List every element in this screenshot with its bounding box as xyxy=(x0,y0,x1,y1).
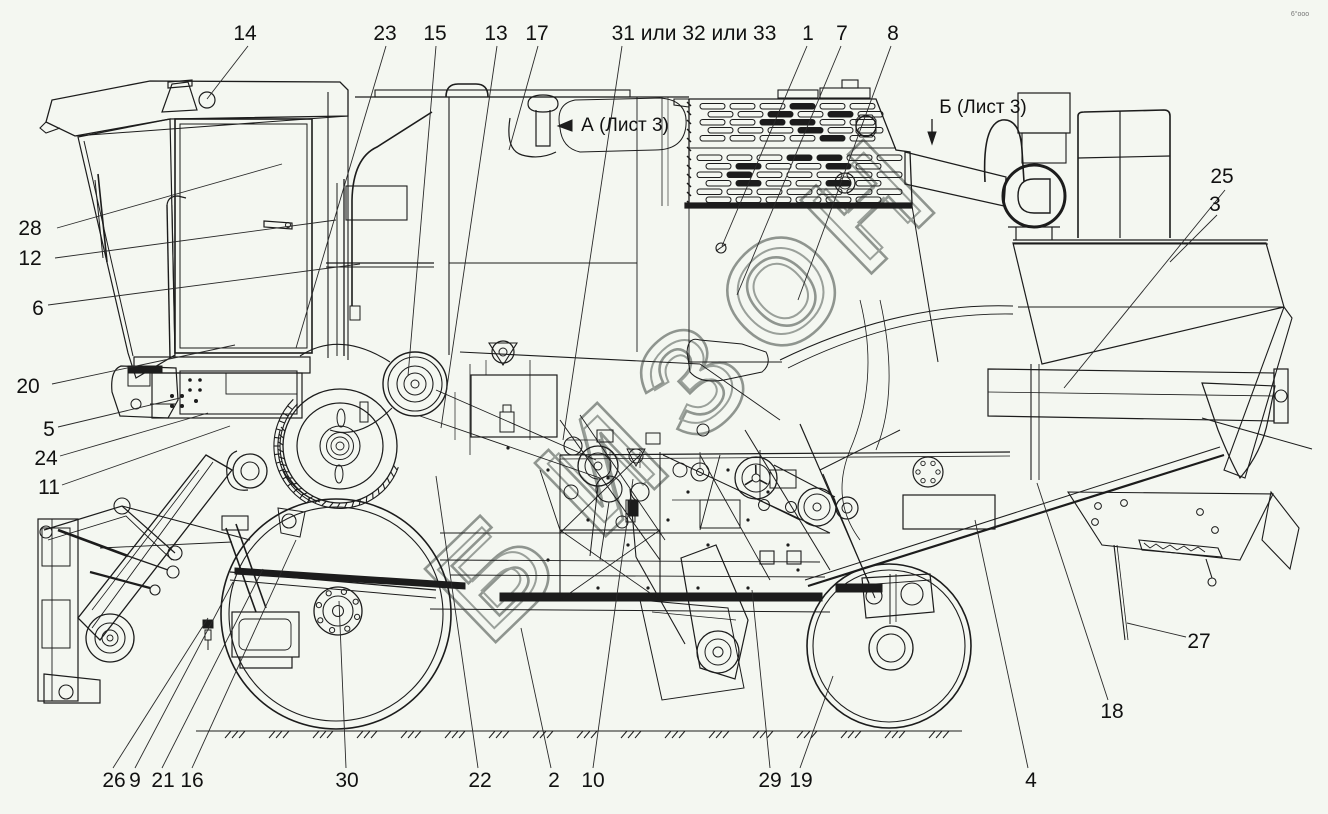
svg-text:4: 4 xyxy=(1025,769,1037,792)
svg-text:7: 7 xyxy=(836,22,848,45)
svg-text:13: 13 xyxy=(484,22,507,45)
svg-text:10: 10 xyxy=(581,769,604,792)
svg-text:2: 2 xyxy=(548,769,560,792)
svg-text:15: 15 xyxy=(423,22,446,45)
svg-text:11: 11 xyxy=(38,476,60,499)
svg-text:3: 3 xyxy=(1209,193,1221,216)
svg-text:16: 16 xyxy=(180,769,203,792)
svg-text:31 или 32 или 33: 31 или 32 или 33 xyxy=(612,22,777,45)
svg-text:1: 1 xyxy=(802,22,814,45)
svg-text:12: 12 xyxy=(18,247,41,270)
svg-text:29: 29 xyxy=(758,769,781,792)
svg-text:19: 19 xyxy=(789,769,812,792)
svg-text:18: 18 xyxy=(1100,700,1123,723)
svg-text:Б (Лист 3): Б (Лист 3) xyxy=(939,97,1027,118)
svg-text:26: 26 xyxy=(102,769,125,792)
svg-text:28: 28 xyxy=(18,217,41,240)
svg-text:8: 8 xyxy=(887,22,899,45)
svg-text:25: 25 xyxy=(1210,165,1233,188)
svg-text:23: 23 xyxy=(373,22,396,45)
svg-text:22: 22 xyxy=(468,769,491,792)
svg-text:17: 17 xyxy=(525,22,548,45)
svg-text:20: 20 xyxy=(16,375,39,398)
svg-text:14: 14 xyxy=(233,22,257,45)
svg-text:9: 9 xyxy=(129,769,141,792)
svg-text:А (Лист 3): А (Лист 3) xyxy=(581,115,669,136)
svg-text:6°ооо: 6°ооо xyxy=(1291,10,1309,18)
svg-text:21: 21 xyxy=(151,769,174,792)
svg-text:27: 27 xyxy=(1187,630,1210,653)
svg-text:30: 30 xyxy=(335,769,358,792)
svg-text:5: 5 xyxy=(43,418,55,441)
svg-text:24: 24 xyxy=(34,447,58,470)
svg-text:6: 6 xyxy=(32,297,44,320)
